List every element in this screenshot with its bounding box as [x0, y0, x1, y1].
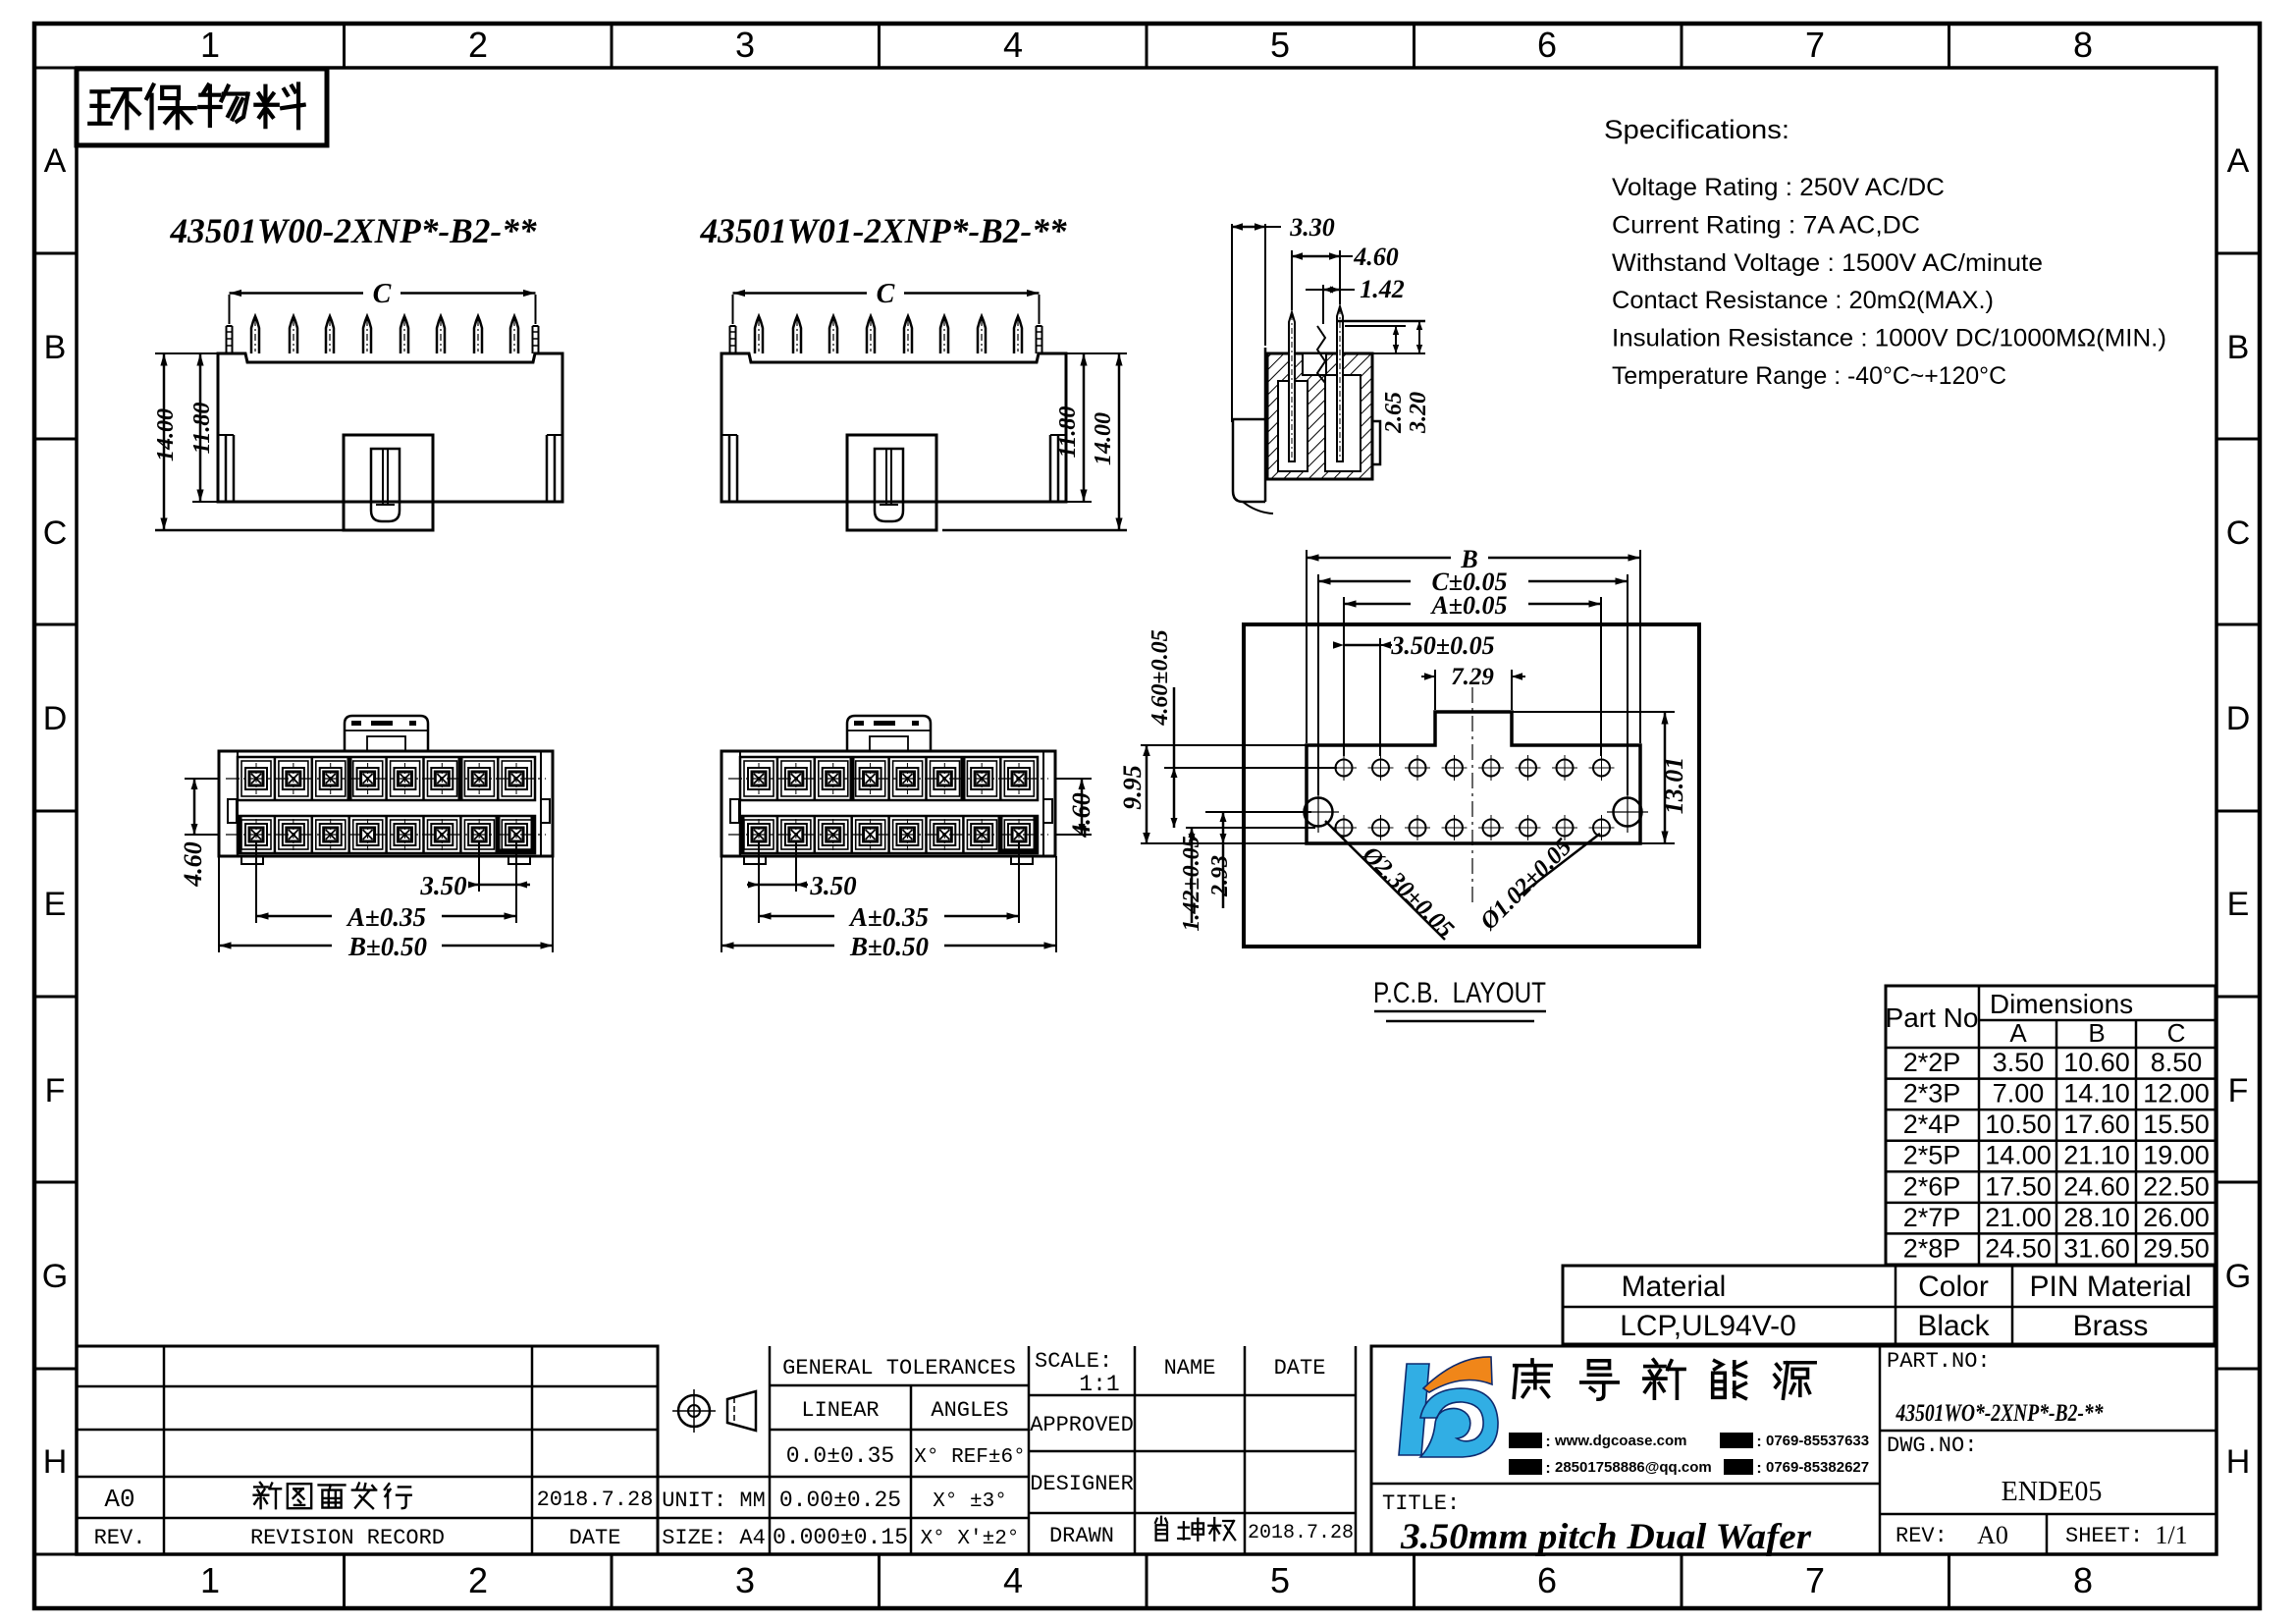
svg-text:3.20: 3.20	[1406, 392, 1431, 434]
svg-text:PIN Material: PIN Material	[2029, 1271, 2191, 1303]
svg-text:2*6P: 2*6P	[1903, 1171, 1961, 1201]
svg-text:DRAWN: DRAWN	[1049, 1524, 1114, 1548]
svg-text:29.50: 29.50	[2143, 1233, 2210, 1263]
svg-text:2*5P: 2*5P	[1903, 1141, 1961, 1170]
svg-text:2: 2	[468, 25, 488, 65]
svg-text:10.50: 10.50	[1985, 1110, 2052, 1139]
svg-text:Withstand Voltage : 1500V AC/m: Withstand Voltage : 1500V AC/minute	[1612, 249, 2043, 277]
svg-text:C: C	[2226, 514, 2251, 552]
svg-text:7.00: 7.00	[1993, 1079, 2045, 1109]
svg-text:D: D	[2226, 700, 2251, 737]
svg-text:2*8P: 2*8P	[1903, 1233, 1961, 1263]
svg-text:DATE: DATE	[569, 1526, 621, 1550]
svg-text:2.65: 2.65	[1381, 392, 1407, 434]
svg-text:3.50: 3.50	[1993, 1048, 2045, 1077]
svg-text:1: 1	[200, 25, 220, 65]
svg-text:Material: Material	[1622, 1271, 1727, 1303]
svg-text:13.01: 13.01	[1660, 757, 1688, 815]
svg-text:11.80: 11.80	[189, 403, 215, 455]
svg-text:4.60: 4.60	[179, 841, 207, 888]
svg-text:4.60: 4.60	[1067, 792, 1095, 839]
svg-text:F: F	[45, 1072, 66, 1110]
svg-text:24.60: 24.60	[2063, 1171, 2130, 1201]
svg-text:C: C	[43, 514, 68, 552]
svg-text:3: 3	[735, 25, 755, 65]
svg-text:APPROVED: APPROVED	[1030, 1413, 1134, 1437]
svg-text:Voltage Rating : 250V AC/DC: Voltage Rating : 250V AC/DC	[1612, 174, 1945, 201]
svg-text:A0: A0	[1977, 1521, 2008, 1549]
svg-text:0769-85537633: 0769-85537633	[1766, 1433, 1869, 1449]
svg-text:17.50: 17.50	[1985, 1171, 2052, 1201]
svg-text:6: 6	[1537, 1560, 1557, 1600]
svg-text:0.000±0.15: 0.000±0.15	[773, 1525, 908, 1550]
svg-text:A: A	[2009, 1018, 2027, 1048]
svg-text:7: 7	[1805, 1560, 1825, 1600]
svg-text:8: 8	[2073, 25, 2093, 65]
svg-text:4: 4	[1003, 25, 1023, 65]
svg-text:TITLE:: TITLE:	[1382, 1491, 1460, 1516]
svg-text:8.50: 8.50	[2151, 1048, 2203, 1077]
svg-text:2.93: 2.93	[1207, 855, 1233, 897]
svg-text:SCALE:: SCALE:	[1035, 1349, 1112, 1374]
svg-text:NAME: NAME	[1164, 1356, 1216, 1380]
svg-text:2*2P: 2*2P	[1903, 1048, 1961, 1077]
svg-text:SHEET:: SHEET:	[2065, 1524, 2143, 1548]
svg-text:G: G	[2225, 1258, 2251, 1295]
svg-text:3.50: 3.50	[419, 871, 467, 900]
svg-text:C: C	[2167, 1018, 2186, 1048]
svg-text:2018.7.28: 2018.7.28	[537, 1488, 654, 1512]
svg-text::: :	[1756, 1460, 1761, 1477]
svg-text:A±0.35: A±0.35	[848, 902, 929, 932]
svg-text:A0: A0	[104, 1485, 134, 1514]
svg-text:3.50mm pitch Dual Wafer: 3.50mm pitch Dual Wafer	[1400, 1517, 1812, 1557]
svg-text:3.50±0.05: 3.50±0.05	[1390, 631, 1494, 660]
svg-text:REV.: REV.	[94, 1526, 146, 1550]
svg-text:C: C	[373, 279, 392, 309]
svg-text:2: 2	[468, 1560, 488, 1600]
svg-text:P.C.B. LAYOUT: P.C.B. LAYOUT	[1373, 977, 1546, 1009]
svg-text:Color: Color	[1918, 1271, 1989, 1303]
svg-text:Specifications:: Specifications:	[1604, 115, 1789, 144]
svg-text:ENDE05: ENDE05	[2002, 1477, 2103, 1507]
svg-text:43501W01-2XNP*-B2-**: 43501W01-2XNP*-B2-**	[700, 211, 1068, 250]
svg-text:X° ±3°: X° ±3°	[933, 1490, 1007, 1513]
svg-text:1.42: 1.42	[1360, 275, 1405, 303]
svg-text:8: 8	[2073, 1560, 2093, 1600]
svg-text:17.60: 17.60	[2063, 1110, 2130, 1139]
svg-text:B: B	[2088, 1018, 2105, 1048]
svg-text::: :	[1756, 1434, 1761, 1450]
svg-text:26.00: 26.00	[2143, 1203, 2210, 1232]
svg-text:GENERAL TOLERANCES: GENERAL TOLERANCES	[782, 1356, 1016, 1380]
svg-text:22.50: 22.50	[2143, 1171, 2210, 1201]
svg-text:7.29: 7.29	[1451, 664, 1494, 690]
svg-text:B±0.50: B±0.50	[849, 932, 930, 961]
svg-text:B: B	[44, 329, 67, 366]
svg-text:21.00: 21.00	[1985, 1203, 2052, 1232]
svg-text:B: B	[2227, 329, 2250, 366]
svg-text:19.00: 19.00	[2143, 1141, 2210, 1170]
svg-text:28.10: 28.10	[2063, 1203, 2130, 1232]
svg-text:14.00: 14.00	[1985, 1141, 2052, 1170]
svg-text:D: D	[43, 700, 68, 737]
svg-text:UNIT: MM: UNIT: MM	[662, 1489, 766, 1513]
svg-text:4.60±0.05: 4.60±0.05	[1148, 629, 1173, 726]
svg-text:2*7P: 2*7P	[1903, 1203, 1961, 1232]
svg-text:43501W00-2XNP*-B2-**: 43501W00-2XNP*-B2-**	[170, 211, 538, 250]
svg-text:A±0.05: A±0.05	[1429, 591, 1507, 620]
svg-text:3.30: 3.30	[1289, 213, 1335, 242]
svg-text:www.dgcoase.com: www.dgcoase.com	[1554, 1433, 1686, 1449]
svg-text:Black: Black	[1917, 1310, 1990, 1342]
svg-text:LCP,UL94V-0: LCP,UL94V-0	[1620, 1310, 1796, 1342]
svg-text:PART.NO:: PART.NO:	[1887, 1349, 1991, 1374]
svg-text:31.60: 31.60	[2063, 1233, 2130, 1263]
svg-text:9.95: 9.95	[1118, 765, 1147, 810]
svg-text:12.00: 12.00	[2143, 1079, 2210, 1109]
svg-text:2*4P: 2*4P	[1903, 1110, 1961, 1139]
svg-text:Insulation Resistance : 1000V: Insulation Resistance : 1000V DC/1000MΩ(…	[1612, 325, 2166, 352]
svg-text:DWG.NO:: DWG.NO:	[1887, 1434, 1977, 1458]
svg-text:1: 1	[200, 1560, 220, 1600]
svg-text:5: 5	[1270, 25, 1290, 65]
svg-text:Brass: Brass	[2073, 1310, 2149, 1342]
svg-text::: :	[1545, 1434, 1550, 1450]
svg-text:21.10: 21.10	[2063, 1141, 2130, 1170]
svg-text:E: E	[2227, 886, 2250, 923]
svg-text:3.50: 3.50	[809, 871, 857, 900]
svg-text:0.0±0.35: 0.0±0.35	[786, 1443, 894, 1469]
svg-text:DATE: DATE	[1274, 1356, 1326, 1380]
svg-text:1:1: 1:1	[1079, 1372, 1119, 1397]
svg-text:14.10: 14.10	[2063, 1079, 2130, 1109]
svg-text:G: G	[42, 1258, 68, 1295]
svg-text:2*3P: 2*3P	[1903, 1079, 1961, 1109]
svg-text:Dimensions: Dimensions	[1990, 989, 2133, 1019]
svg-text:A±0.35: A±0.35	[346, 902, 426, 932]
svg-text:28501758886@qq.com: 28501758886@qq.com	[1555, 1459, 1712, 1476]
svg-text:SIZE: A4: SIZE: A4	[662, 1526, 766, 1550]
svg-text:1.42±0.05: 1.42±0.05	[1179, 836, 1204, 931]
svg-text:A: A	[2227, 142, 2250, 180]
svg-text:X° X'±2°: X° X'±2°	[921, 1528, 1020, 1550]
svg-text:11.80: 11.80	[1055, 406, 1081, 459]
svg-text:Temperature Range : -40°C~+120: Temperature Range : -40°C~+120°C	[1612, 362, 2006, 390]
svg-text:C: C	[877, 279, 895, 309]
svg-text:14.00: 14.00	[1091, 412, 1116, 465]
svg-text:43501WO*-2XNP*-B2-**: 43501WO*-2XNP*-B2-**	[1896, 1400, 2104, 1427]
svg-text:H: H	[2226, 1443, 2251, 1481]
svg-text::: :	[1545, 1460, 1550, 1477]
svg-text:Current Rating : 7A AC,DC: Current Rating : 7A AC,DC	[1612, 211, 1920, 239]
svg-text:4.60: 4.60	[1353, 243, 1399, 271]
svg-text:Contact Resistance : 20mΩ(MAX.: Contact Resistance : 20mΩ(MAX.)	[1612, 287, 1994, 314]
svg-text:6: 6	[1537, 25, 1557, 65]
svg-text:ANGLES: ANGLES	[931, 1398, 1008, 1423]
svg-text:5: 5	[1270, 1560, 1290, 1600]
svg-text:X° REF±6°: X° REF±6°	[914, 1446, 1025, 1469]
svg-text:10.60: 10.60	[2063, 1048, 2130, 1077]
svg-text:REVISION RECORD: REVISION RECORD	[250, 1526, 445, 1550]
svg-text:E: E	[44, 886, 67, 923]
svg-text:3: 3	[735, 1560, 755, 1600]
svg-text:0.00±0.25: 0.00±0.25	[779, 1488, 901, 1513]
svg-text:A: A	[44, 142, 67, 180]
svg-text:15.50: 15.50	[2143, 1110, 2210, 1139]
svg-text:14.00: 14.00	[153, 408, 179, 461]
svg-text:H: H	[43, 1443, 68, 1481]
svg-text:4: 4	[1003, 1560, 1023, 1600]
svg-text:B±0.50: B±0.50	[347, 932, 428, 961]
svg-text:2018.7.28: 2018.7.28	[1248, 1522, 1354, 1544]
svg-text:24.50: 24.50	[1985, 1233, 2052, 1263]
svg-text:REV:: REV:	[1896, 1524, 1948, 1548]
svg-text:DESIGNER: DESIGNER	[1030, 1472, 1134, 1496]
svg-text:Part No: Part No	[1886, 1002, 1979, 1033]
svg-text:1/1: 1/1	[2155, 1521, 2187, 1549]
svg-text:0769-85382627: 0769-85382627	[1766, 1459, 1869, 1476]
svg-text:7: 7	[1805, 25, 1825, 65]
svg-text:LINEAR: LINEAR	[801, 1398, 879, 1423]
svg-text:F: F	[2228, 1072, 2249, 1110]
